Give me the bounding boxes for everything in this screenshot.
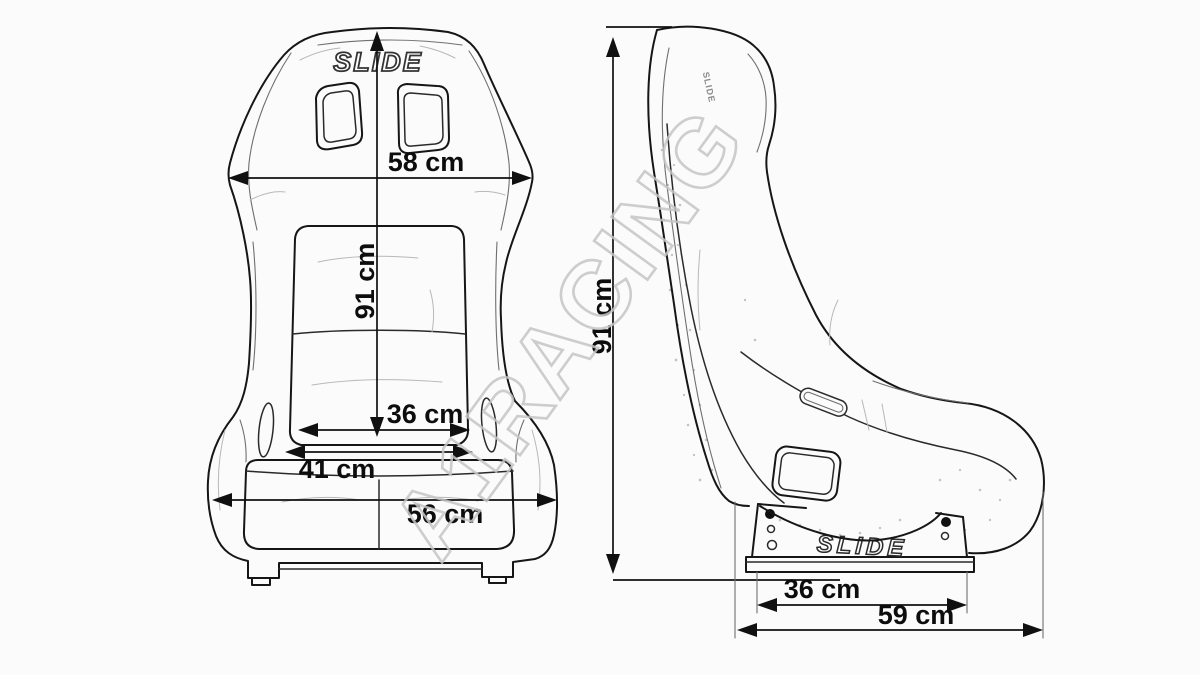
side-view: SLIDE SLIDE: [587, 27, 1044, 638]
dim-shoulder-width: 58 cm: [228, 147, 532, 185]
shoulder-slot: [798, 386, 849, 418]
seat-dimension-diagram: SLIDE 91 cm 58 cm 36 cm 41 cm: [0, 0, 1200, 675]
dim-front-height-label: 91 cm: [350, 243, 380, 320]
dim-shoulder-width-label: 58 cm: [388, 147, 465, 177]
seat-base-feet: [252, 569, 506, 585]
dim-total-depth-label: 59 cm: [878, 600, 955, 630]
dim-seat-width-mid-label: 41 cm: [299, 454, 376, 484]
harness-hole-left: [316, 83, 362, 149]
dim-total-depth: 59 cm: [735, 492, 1043, 638]
dim-mount-length-label: 36 cm: [784, 574, 861, 604]
brand-logo-headrest-side: SLIDE: [701, 71, 717, 104]
side-seat-outline: [657, 27, 1044, 554]
lap-belt-hole: [771, 445, 841, 502]
drawing-canvas: SLIDE 91 cm 58 cm 36 cm 41 cm: [0, 0, 1200, 675]
brand-logo-front: SLIDE: [333, 47, 423, 77]
harness-hole-right: [398, 84, 449, 153]
bolt-right-top: [941, 517, 951, 527]
